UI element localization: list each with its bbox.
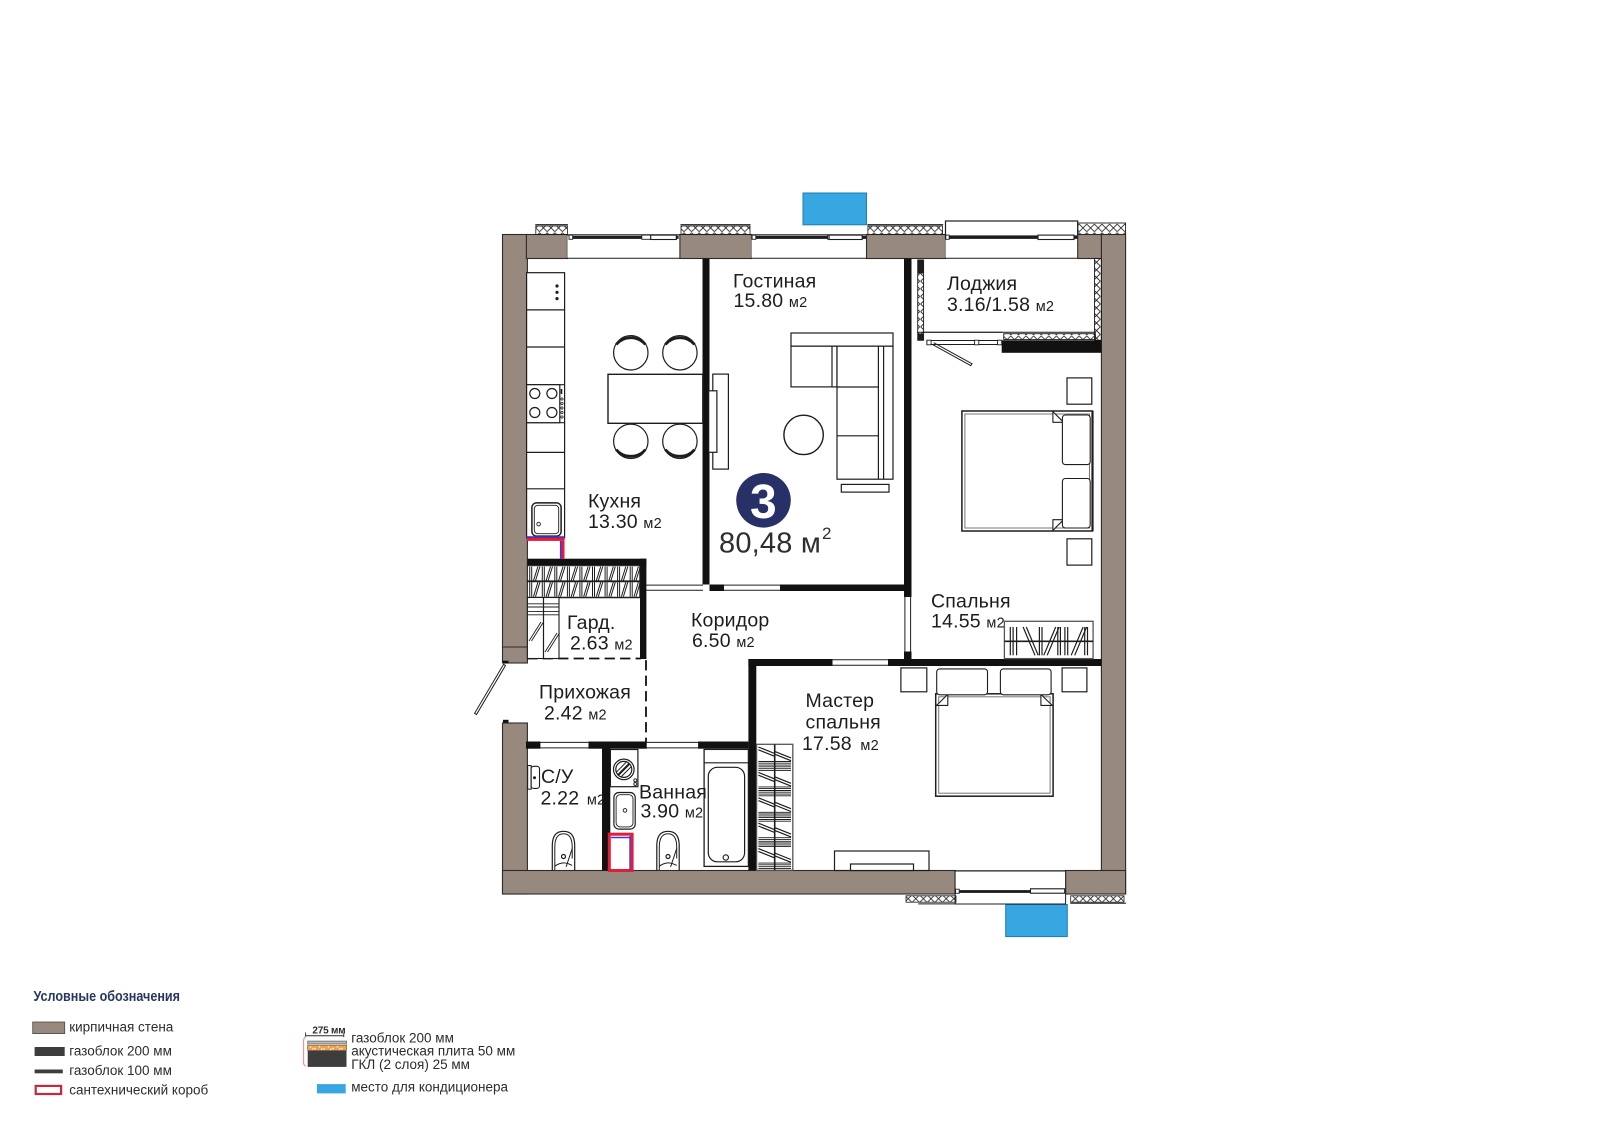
svg-text:Лоджия: Лоджия xyxy=(947,273,1017,295)
svg-text:газоблок 100 мм: газоблок 100 мм xyxy=(69,1063,172,1078)
svg-text:Кухня: Кухня xyxy=(588,491,641,513)
svg-text:Прихожая: Прихожая xyxy=(539,682,631,704)
svg-text:Условные обозначения: Условные обозначения xyxy=(34,989,181,1005)
svg-text:спальня: спальня xyxy=(806,712,881,734)
svg-text:Мастер: Мастер xyxy=(806,690,875,712)
svg-text:275 мм: 275 мм xyxy=(312,1025,345,1036)
svg-text:сантехнический короб: сантехнический короб xyxy=(69,1082,208,1097)
svg-text:Гард.: Гард. xyxy=(567,612,616,634)
svg-text:Коридор: Коридор xyxy=(691,610,769,632)
svg-text:газоблок 200 мм: газоблок 200 мм xyxy=(69,1043,172,1058)
svg-text:80,48 м2: 80,48 м2 xyxy=(719,524,832,560)
svg-text:кирпичная стена: кирпичная стена xyxy=(69,1020,174,1035)
svg-text:С/У: С/У xyxy=(541,766,574,788)
svg-text:Спальня: Спальня xyxy=(931,591,1011,613)
svg-text:ГКЛ (2 слоя) 25 мм: ГКЛ (2 слоя) 25 мм xyxy=(351,1057,470,1072)
svg-text:3: 3 xyxy=(750,476,777,529)
svg-text:место для кондиционера: место для кондиционера xyxy=(351,1079,508,1094)
